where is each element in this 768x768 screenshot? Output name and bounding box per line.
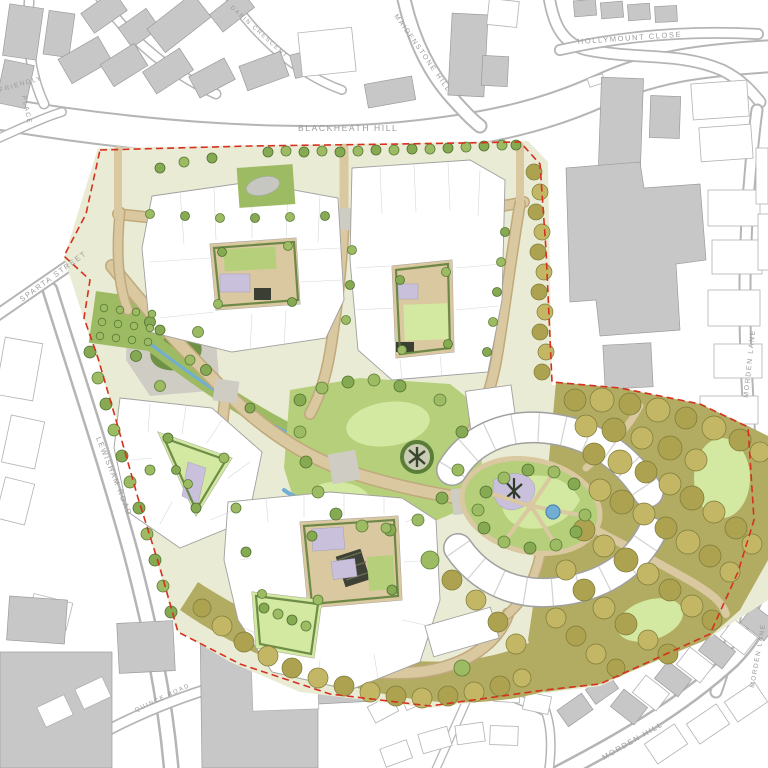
street-label-blackheath-hill: BLACKHEATH HILL [298,123,398,133]
masterplan-canvas: BLACKHEATH HILL MAIDENSTONE HILL HOLLYMO… [0,0,768,768]
street-label-dabin-crescent: DABIN CRESCENT [229,5,289,60]
site-plan-drawing: BLACKHEATH HILL MAIDENSTONE HILL HOLLYMO… [0,0,768,768]
oval-pond [546,505,560,519]
